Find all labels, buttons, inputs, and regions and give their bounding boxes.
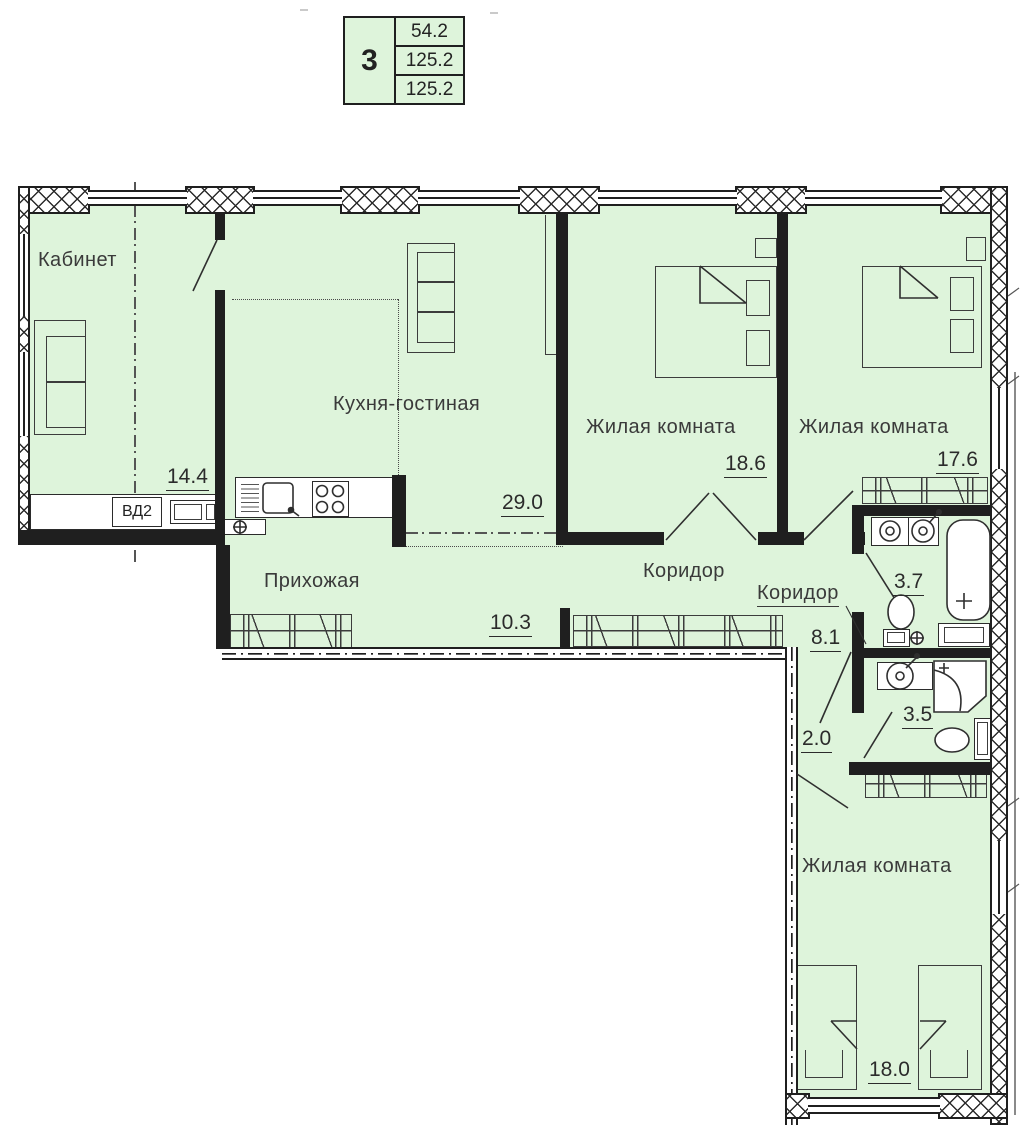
bed-fold-line (920, 1021, 946, 1049)
door-swing-bedroom-bottom (797, 774, 848, 808)
area-corridor-main: 8.1 (810, 626, 841, 652)
room-label-kabinet: Кабинет (38, 249, 117, 272)
area-bathroom-small: 3.5 (902, 703, 933, 729)
room-label-hallway: Прихожая (264, 570, 360, 593)
bathtub (947, 520, 990, 620)
area-bedroom-bottom: 18.0 (868, 1058, 911, 1084)
door-swing-corridor-small (820, 652, 851, 723)
toilet (935, 728, 969, 752)
area-corridor-small: 2.0 (801, 727, 832, 753)
stove-burner (317, 486, 328, 497)
window-opening-tick (1008, 288, 1019, 296)
room-label-corridor-small: Коридор (757, 582, 839, 607)
area-hallway: 10.3 (489, 611, 532, 637)
area-bedroom-top-left: 18.6 (724, 452, 767, 478)
sink-faucet (929, 513, 938, 523)
sink-drain (896, 672, 904, 680)
area-bathroom-large: 3.7 (893, 570, 924, 596)
room-label-corridor-main: Коридор (643, 560, 725, 583)
floor-plan: 3 54.2 125.2 125.2 ВД2 (0, 0, 1024, 1135)
door-swing-kabinet (193, 240, 217, 291)
window-opening-tick (1008, 798, 1019, 806)
stove-burner (333, 502, 344, 513)
door-swing-bedroom-top-left (666, 493, 756, 540)
bed-fold-line (900, 266, 938, 298)
window-opening-tick (1008, 884, 1019, 892)
room-label-kitchen-living: Кухня-гостиная (333, 393, 480, 416)
sink-faucet-knob (915, 654, 919, 658)
door-swing-bathroom-small (864, 712, 892, 758)
room-label-bedroom-top-right: Жилая комната (799, 416, 949, 439)
plan-linework (0, 0, 1024, 1135)
bed-fold-line (700, 266, 746, 303)
plumbing-riser-symbol (910, 631, 924, 645)
area-bedroom-top-right: 17.6 (936, 448, 979, 474)
sink-faucet (906, 658, 916, 668)
washing-machine-door (880, 521, 900, 541)
area-kabinet: 14.4 (166, 465, 209, 491)
door-swing-bedroom-top-right (804, 491, 853, 540)
sink-bowl (887, 663, 913, 689)
toilet (888, 595, 914, 629)
sink-drain (919, 527, 927, 535)
plumbing-riser-symbol (233, 520, 247, 534)
registration-tick (300, 10, 498, 13)
window-opening-tick (1008, 376, 1019, 384)
area-kitchen-living: 29.0 (501, 491, 544, 517)
bed-fold-line (831, 1021, 857, 1049)
washing-machine-door (886, 527, 894, 535)
room-label-bedroom-top-left: Жилая комната (586, 416, 736, 439)
room-label-bedroom-bottom: Жилая комната (802, 855, 952, 878)
stove-burner (333, 486, 344, 497)
corridor-label-leader (846, 606, 866, 644)
sink-faucet-knob (937, 510, 941, 514)
stove-burner (317, 502, 328, 513)
sink-bowl (912, 520, 934, 542)
